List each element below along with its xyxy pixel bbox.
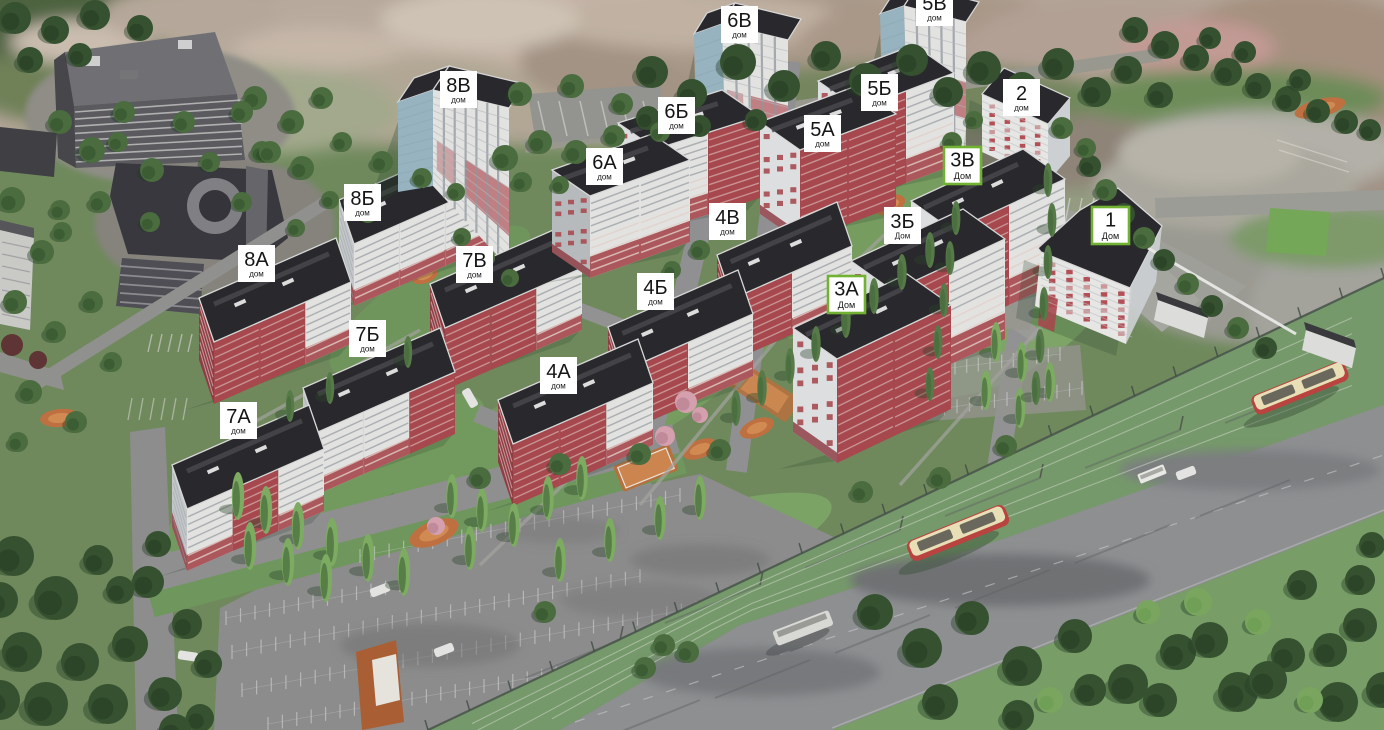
svg-text:дом: дом [648,298,663,307]
svg-text:дом: дом [720,228,735,237]
svg-text:8А: 8А [244,249,269,271]
svg-text:8В: 8В [446,75,470,97]
svg-text:дом: дом [669,122,684,131]
svg-text:3В: 3В [950,150,974,172]
svg-text:4В: 4В [715,207,739,229]
svg-text:дом: дом [597,173,612,182]
svg-text:Дом: Дом [954,171,971,181]
svg-text:8Б: 8Б [350,188,374,210]
svg-text:1: 1 [1105,210,1116,232]
svg-text:дом: дом [249,270,264,279]
svg-text:2: 2 [1016,83,1027,105]
svg-text:6А: 6А [592,152,617,174]
svg-text:дом: дом [872,99,887,108]
svg-text:3А: 3А [834,279,859,301]
svg-text:дом: дом [815,140,830,149]
svg-text:дом: дом [360,345,375,354]
svg-text:дом: дом [355,209,370,218]
svg-text:6Б: 6Б [664,101,688,123]
svg-text:4Б: 4Б [643,277,667,299]
svg-text:Дом: Дом [895,232,910,241]
svg-text:6В: 6В [727,10,751,32]
svg-text:дом: дом [451,96,466,105]
svg-text:дом: дом [732,31,747,40]
svg-text:7А: 7А [226,406,251,428]
svg-text:Дом: Дом [1102,231,1119,241]
svg-text:4А: 4А [546,361,571,383]
svg-text:5А: 5А [810,119,835,141]
svg-text:дом: дом [1014,104,1029,113]
svg-text:Дом: Дом [838,300,855,310]
svg-text:7Б: 7Б [355,324,379,346]
svg-text:3Б: 3Б [890,211,914,233]
svg-text:7В: 7В [462,250,486,272]
svg-text:дом: дом [467,271,482,280]
svg-text:5Б: 5Б [867,78,891,100]
svg-text:дом: дом [927,14,942,23]
svg-text:дом: дом [231,427,246,436]
svg-text:дом: дом [551,382,566,391]
